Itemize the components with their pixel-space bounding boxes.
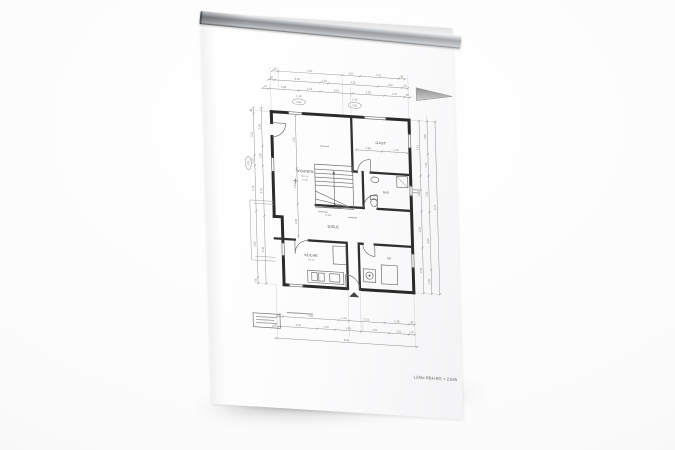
- dimension-chain-left-2: 2,261,263,014,08: [257, 107, 267, 285]
- dimension-label: 1,76: [392, 92, 398, 96]
- kitchen-fixtures: [307, 244, 347, 284]
- dimension-label: 2,76: [251, 185, 255, 191]
- dimension-chain-interior-vertical: 2,261,511,38: [291, 115, 300, 238]
- dimension-label: 3,01: [259, 187, 263, 193]
- window-oval-label: 2,01: [246, 160, 250, 166]
- dimension-chain-right-1: 3,132,012,012,63: [415, 119, 425, 294]
- dimension-label: 2,88: [281, 85, 287, 89]
- dimension-label: 3,26: [426, 238, 430, 244]
- dimension-label: 4,26: [350, 80, 356, 84]
- room-label-guest: GAST: [375, 141, 386, 146]
- dimension-label: 24: [410, 330, 414, 334]
- lintel-label-right: 1,13 2,01: [348, 97, 361, 109]
- room-elevation-living: ±0,00: [302, 179, 308, 181]
- dimension-label: 1,13: [341, 316, 347, 320]
- dimension-label: 2,63: [419, 267, 423, 273]
- dimension-label: 2,01: [418, 226, 422, 232]
- ceiling-height-note: Lichte RBH EG + 2,625: [413, 374, 457, 382]
- room-area-living: 38,2 m²: [301, 175, 309, 178]
- room-labels: WOHNEN 38,2 m² ±0,00 GAST DIELE BAD KÜCH…: [292, 136, 391, 267]
- dimension-label: 1,38: [345, 326, 351, 330]
- dimension-label: 9,74: [433, 204, 437, 210]
- dimension-chain-right-2: 1,881,262,013,261,38: [423, 120, 433, 295]
- dimension-label: 36: [274, 67, 278, 71]
- dimension-label: 36: [400, 74, 404, 78]
- dimension-label: 36: [254, 278, 258, 282]
- dimension-label: 3,26: [295, 77, 301, 81]
- lintel-oval-label: 2,01: [296, 100, 302, 104]
- dimension-label: 2,51: [372, 328, 378, 332]
- dimension-label: 1,13: [393, 148, 399, 152]
- dimension-label: 1,51: [348, 71, 354, 75]
- dimension-label: 1,26: [323, 325, 329, 329]
- wedge-pointer-symbol: [416, 88, 452, 103]
- dimension-label: 2,26: [257, 124, 261, 130]
- dimension-label: 3,26: [296, 323, 302, 327]
- dimension-label: 3,13: [415, 144, 419, 150]
- dimension-label: 2,51: [376, 73, 382, 77]
- room-label-bath: BAD: [383, 190, 389, 194]
- dimension-label: 1,01: [322, 78, 328, 82]
- dimension-label: 2,26: [292, 137, 296, 143]
- product-photo-scene: 365,011,512,5136 363,261,014,261,0124 12…: [0, 0, 675, 450]
- lintel-height-label: 1,13: [296, 94, 302, 98]
- dimension-label: 4,08: [261, 246, 265, 252]
- dimension-label: 3,01: [334, 88, 340, 92]
- dimension-label: 1,38: [294, 218, 298, 224]
- dimension-label: 2,51: [250, 131, 254, 137]
- room-label-storage: AR: [387, 256, 391, 260]
- dimension-label: 12: [264, 84, 268, 88]
- dimension-chain-top-2: 363,261,014,261,0124: [267, 75, 409, 89]
- entrance-arrow: [349, 292, 359, 298]
- dimension-label: 1,38: [427, 279, 431, 285]
- dimension-label: 2,01: [425, 191, 429, 197]
- dimension-label: 9,49: [344, 338, 350, 342]
- lintel-oval-label: 2,01: [352, 103, 358, 107]
- dimension-label: 36: [270, 75, 274, 79]
- dimension-label: 2,51: [364, 317, 370, 321]
- dimension-chain-top-1: 365,011,512,5136: [271, 66, 406, 80]
- stair-note: 16 Stg: [325, 214, 332, 217]
- dimension-label: 1,88: [423, 134, 427, 140]
- elevation-cross: [293, 178, 298, 183]
- lintel-label-left: 1,13 2,01: [292, 94, 305, 106]
- utility-fixtures: [363, 264, 397, 285]
- floor-plan-paper-sheet: 365,011,512,5136 363,261,014,261,0124 12…: [201, 13, 463, 420]
- dimension-label: 1,51: [396, 329, 402, 333]
- dimension-label: 5,01: [307, 69, 313, 73]
- room-label-hall: DIELE: [328, 225, 340, 230]
- dimension-label: 1,13: [307, 87, 313, 91]
- dimension-label: 1,51: [293, 183, 297, 189]
- dimension-label: 1,26: [424, 162, 428, 168]
- room-label-kitchen: KÜCHE: [304, 253, 318, 258]
- lintel-height-label: 1,13: [352, 97, 358, 101]
- dimension-label: 36: [406, 93, 410, 97]
- dimension-label: 1,01: [387, 83, 393, 87]
- dimension-label: 3,96: [253, 241, 257, 247]
- dimension-label: 2,38: [365, 146, 371, 150]
- dimension-chain-interior-horizontal: 2,381,13: [355, 145, 409, 154]
- dimension-chain-left-1: 362,511,012,763,9636: [249, 106, 259, 284]
- dimension-label: 36: [410, 320, 414, 324]
- staircase: 16 Stg: [315, 164, 354, 218]
- room-area-kitchen: 9,8 m²: [308, 258, 315, 261]
- dimension-label: 24: [404, 84, 408, 88]
- dimension-chain-bottom-total: 9,49: [274, 334, 418, 348]
- dimension-label: 1,38: [394, 319, 400, 323]
- door-symbols: [272, 123, 381, 299]
- dimension-label: 36: [249, 108, 253, 112]
- dimension-label: 2,63: [366, 90, 372, 94]
- floor-plan-drawing: 365,011,512,5136 363,261,014,261,0124 12…: [201, 13, 463, 420]
- dimension-label: 1,26: [258, 153, 262, 159]
- room-label-living: WOHNEN: [296, 169, 314, 174]
